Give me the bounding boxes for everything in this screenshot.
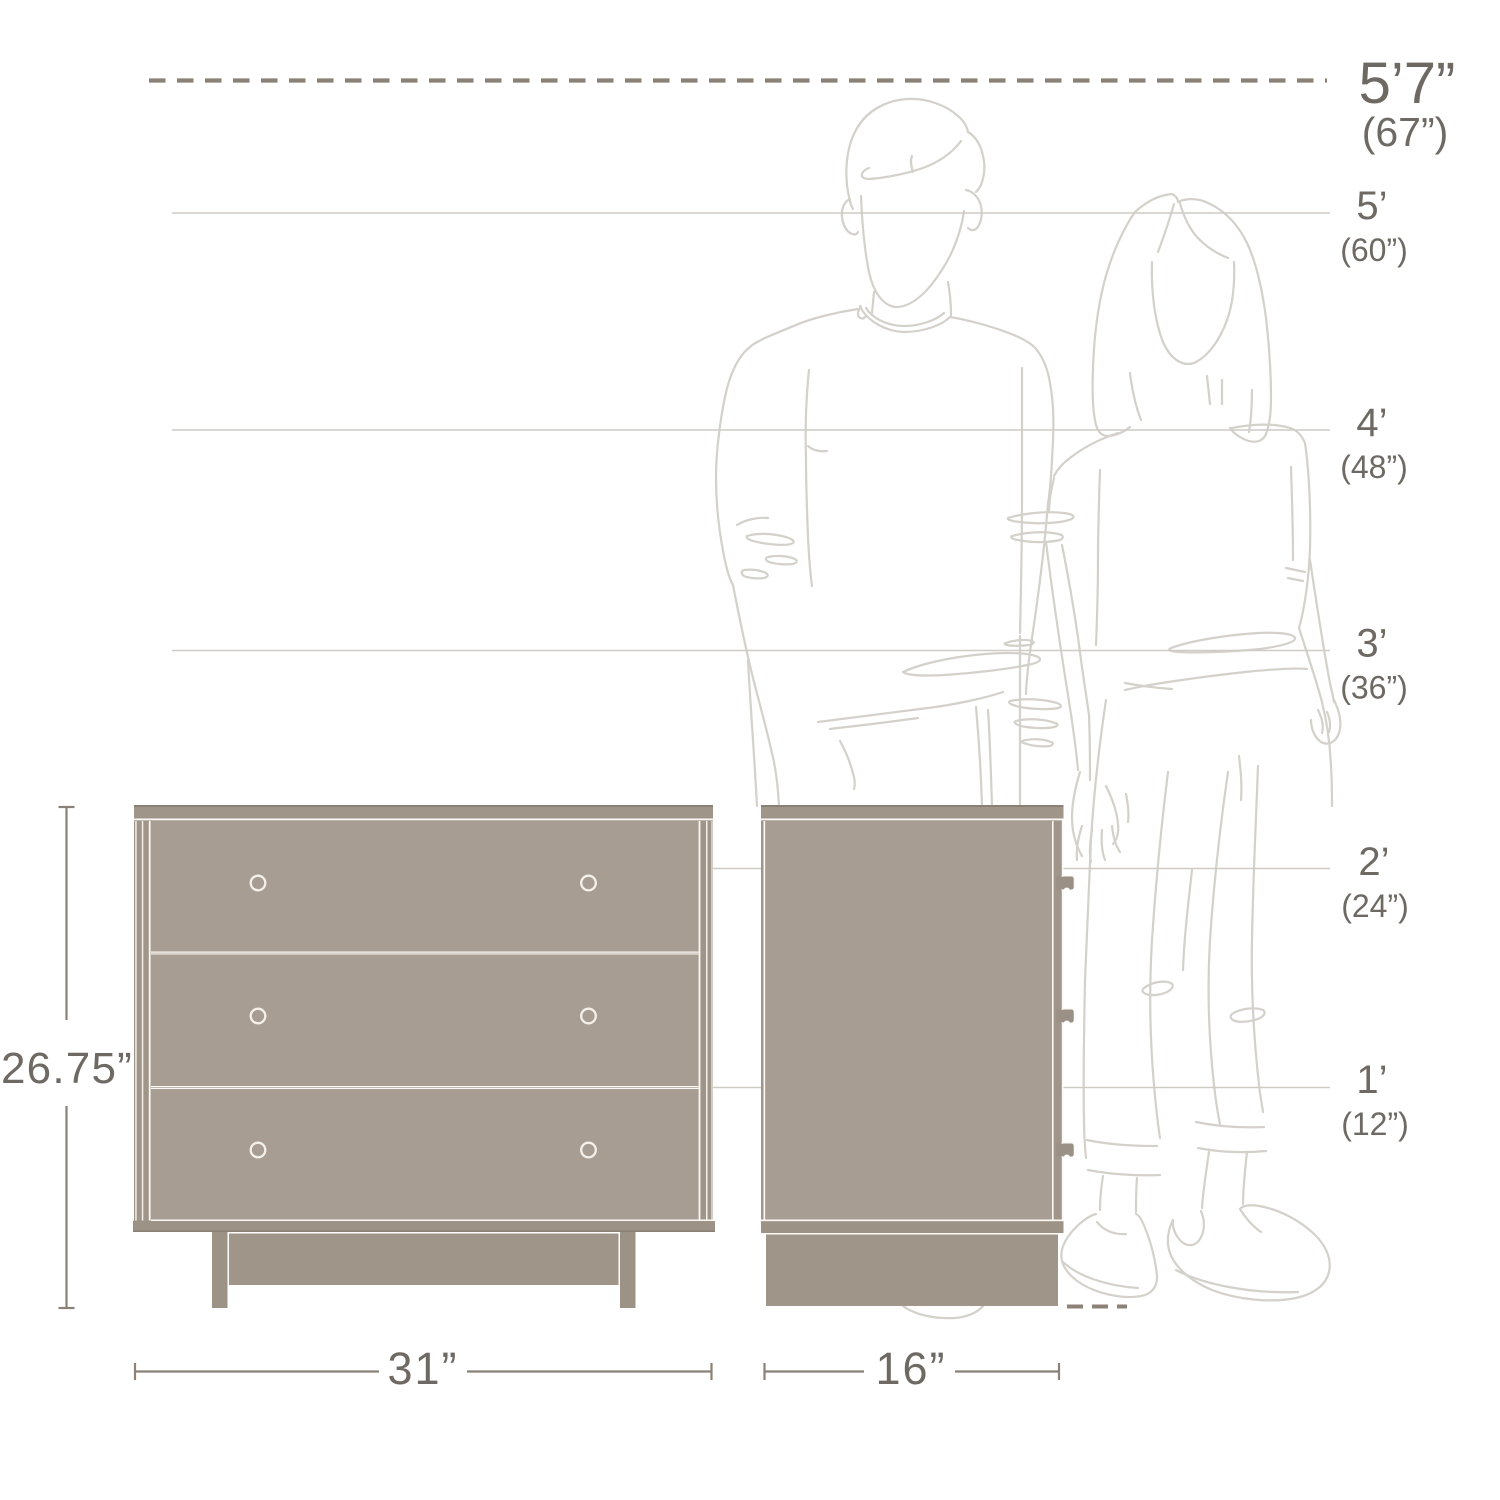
svg-text:5’: 5’ — [1356, 184, 1387, 228]
svg-text:1’: 1’ — [1356, 1058, 1387, 1102]
svg-text:4’: 4’ — [1356, 401, 1387, 445]
svg-text:(24”): (24”) — [1341, 888, 1409, 924]
svg-text:3’: 3’ — [1356, 622, 1387, 666]
svg-text:26.75”: 26.75” — [1, 1044, 133, 1093]
svg-text:(48”): (48”) — [1340, 449, 1408, 485]
svg-text:(60”): (60”) — [1340, 232, 1408, 268]
svg-text:(67”): (67”) — [1362, 109, 1449, 155]
svg-text:2’: 2’ — [1358, 840, 1389, 884]
svg-text:(36”): (36”) — [1340, 670, 1408, 706]
svg-text:5’7”: 5’7” — [1359, 51, 1456, 116]
svg-text:31”: 31” — [387, 1343, 458, 1394]
svg-text:16”: 16” — [875, 1343, 946, 1394]
svg-text:(12”): (12”) — [1341, 1106, 1409, 1142]
